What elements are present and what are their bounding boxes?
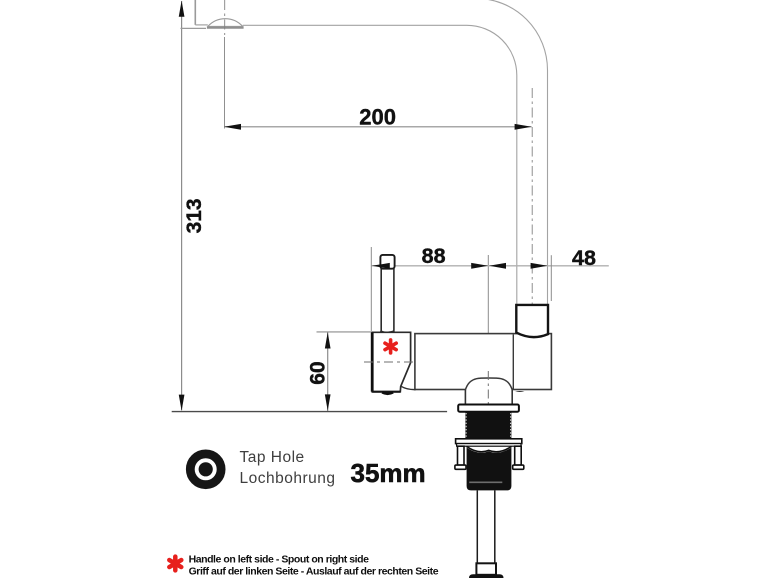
svg-text:60: 60 [307,361,330,384]
svg-text:Lochbohrung: Lochbohrung [240,470,336,487]
svg-text:200: 200 [359,105,396,130]
svg-text:35mm: 35mm [351,458,426,488]
svg-text:Tap Hole: Tap Hole [240,449,305,466]
svg-text:Handle on left side - Spout on: Handle on left side - Spout on right sid… [189,553,369,565]
svg-text:48: 48 [572,246,596,270]
svg-text:Griff auf der linken Seite - A: Griff auf der linken Seite - Auslauf auf… [189,565,439,577]
svg-text:88: 88 [422,244,446,268]
svg-text:313: 313 [183,198,206,233]
